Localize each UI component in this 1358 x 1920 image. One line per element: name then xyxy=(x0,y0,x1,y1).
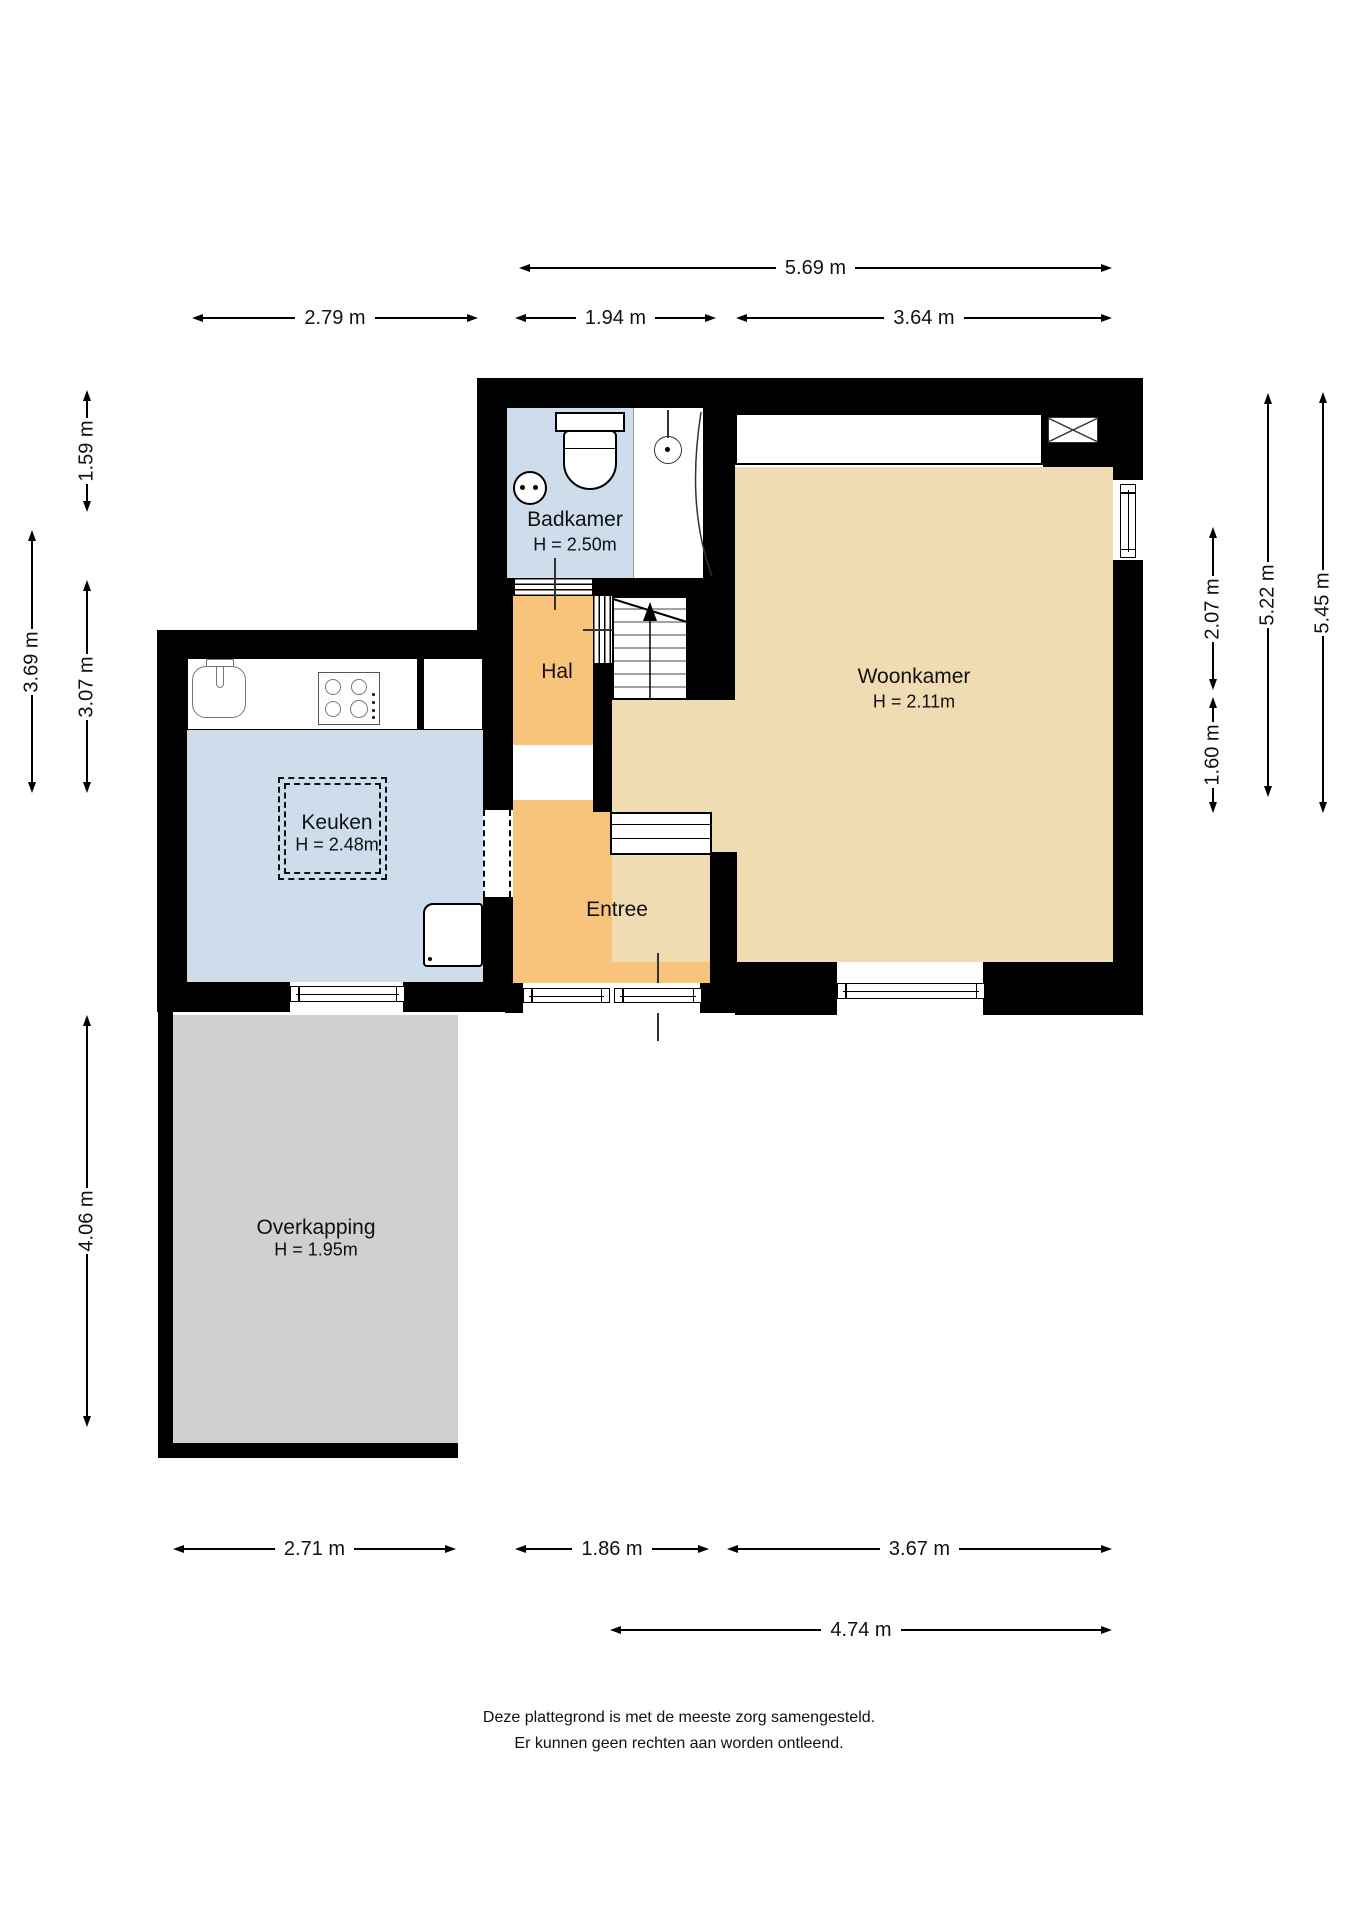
dimension-left-overkapping: 4.06 m xyxy=(77,1015,97,1427)
shower-curtain-icon xyxy=(696,412,712,576)
dimension-top-overall: 5.69 m xyxy=(519,258,1112,278)
dimension-top-keuken: 2.79 m xyxy=(192,308,478,328)
dimension-right-inner-total: 5.22 m xyxy=(1258,393,1278,797)
dimension-label: 4.06 m xyxy=(76,1190,99,1251)
dimension-left-outer: 3.69 m xyxy=(22,530,42,793)
roof-light-x-icon xyxy=(1048,418,1098,442)
room-label-badkamer: Badkamer xyxy=(527,508,623,532)
room-height-badkamer: H = 2.50m xyxy=(533,535,617,556)
dimension-bottom-overkapping: 2.71 m xyxy=(173,1539,456,1559)
dimension-label: 2.79 m xyxy=(304,307,365,330)
dimension-label: 2.07 m xyxy=(1202,578,1225,639)
dimension-label: 2.71 m xyxy=(284,1538,345,1561)
room-label-keuken: Keuken xyxy=(301,811,372,835)
dimension-label: 1.60 m xyxy=(1202,724,1225,785)
dimension-label: 5.45 m xyxy=(1312,572,1335,633)
floorplan-canvas: 5.69 m 2.79 m 1.94 m 3.64 m 1.59 m 3.69 … xyxy=(0,0,1358,1920)
dimension-left-badkamer: 1.59 m xyxy=(77,390,97,512)
stairs-direction-arrow-icon xyxy=(643,602,657,698)
disclaimer: Deze plattegrond is met de meeste zorg s… xyxy=(0,1705,1358,1756)
dimension-left-keuken: 3.07 m xyxy=(77,580,97,793)
dimension-label: 3.07 m xyxy=(76,656,99,717)
room-label-entree: Entree xyxy=(586,898,648,922)
dimension-bottom-woonkamer: 3.67 m xyxy=(727,1539,1112,1559)
dimension-label: 5.22 m xyxy=(1257,564,1280,625)
dimension-bottom-entree: 1.86 m xyxy=(515,1539,709,1559)
dimension-label: 3.64 m xyxy=(893,307,954,330)
room-height-overkapping: H = 1.95m xyxy=(274,1240,358,1261)
room-label-hal: Hal xyxy=(541,660,573,684)
room-height-keuken: H = 2.48m xyxy=(295,835,379,856)
dimension-label: 3.69 m xyxy=(21,631,44,692)
dimension-label: 1.94 m xyxy=(585,307,646,330)
room-height-woonkamer: H = 2.11m xyxy=(873,692,955,713)
dimension-label: 3.67 m xyxy=(889,1538,950,1561)
dimension-label: 4.74 m xyxy=(830,1619,891,1642)
dimension-right-outer-total: 5.45 m xyxy=(1313,392,1333,813)
dimension-top-badkamer: 1.94 m xyxy=(515,308,716,328)
room-label-woonkamer: Woonkamer xyxy=(858,665,971,689)
dimension-label: 5.69 m xyxy=(785,257,846,280)
dimension-bottom-total: 4.74 m xyxy=(610,1620,1112,1640)
disclaimer-line-1: Deze plattegrond is met de meeste zorg s… xyxy=(0,1705,1358,1731)
room-label-overkapping: Overkapping xyxy=(256,1216,375,1240)
dimension-right-upper: 2.07 m xyxy=(1203,527,1223,690)
dimension-top-woonkamer: 3.64 m xyxy=(736,308,1112,328)
disclaimer-line-2: Er kunnen geen rechten aan worden ontlee… xyxy=(0,1731,1358,1757)
dimension-label: 1.59 m xyxy=(76,420,99,481)
dimension-label: 1.86 m xyxy=(581,1538,642,1561)
dimension-right-lower: 1.60 m xyxy=(1203,697,1223,813)
